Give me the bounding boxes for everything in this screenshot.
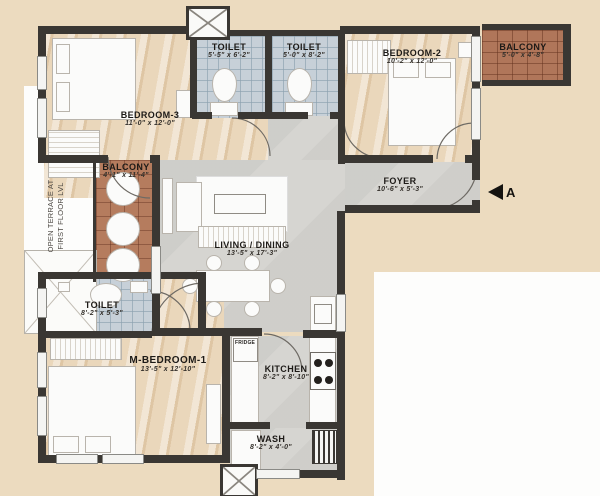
open-terrace-line1: OPEN TERRACE AT <box>46 168 56 264</box>
wall <box>337 211 345 296</box>
window <box>37 98 47 138</box>
room-name: TOILET <box>272 42 336 52</box>
wall <box>482 24 570 30</box>
room-label-toilet1: TOILET 5'-5" x 6'-2" <box>197 42 261 59</box>
window <box>37 56 47 90</box>
wall <box>340 26 480 34</box>
room-dims: 11'-0" x 12'-0" <box>90 120 210 127</box>
wall <box>38 26 46 162</box>
room-label-bedroom2: BEDROOM-2 10'-2" x 12'-0" <box>352 48 472 65</box>
room-label-balcony-right: BALCONY 5'-0" x 4'-8" <box>483 42 563 59</box>
section-marker-letter: A <box>506 185 515 200</box>
wall <box>330 112 345 119</box>
open-terrace-label: OPEN TERRACE AT FIRST FLOOR LVL <box>46 168 68 264</box>
wall <box>345 155 433 163</box>
room-name: WASH <box>226 434 316 444</box>
room-dims: 10'-6" x 5'-3" <box>350 186 450 193</box>
room-label-kitchen: KITCHEN 8'-2" x 8'-10" <box>236 364 336 381</box>
wall <box>482 80 570 86</box>
wall <box>198 272 206 336</box>
wall <box>38 272 206 279</box>
room-name: LIVING / DINING <box>192 240 312 250</box>
room-label-toilet2: TOILET 5'-0" x 8'-2" <box>272 42 336 59</box>
wall <box>345 205 480 213</box>
floor-plan: BEDROOM-3 11'-0" x 12'-0" TOILET 5'-5" x… <box>0 0 600 496</box>
room-name: BEDROOM-3 <box>90 110 210 120</box>
room-label-foyer: FOYER 10'-6" x 5'-3" <box>350 176 450 193</box>
window <box>37 396 47 436</box>
open-terrace-line2: FIRST FLOOR LVL <box>56 168 66 264</box>
room-label-living-dining: LIVING / DINING 13'-5" x 17'-3" <box>192 240 312 257</box>
room-name: TOILET <box>62 300 142 310</box>
room-label-bedroom3: BEDROOM-3 11'-0" x 12'-0" <box>90 110 210 127</box>
window <box>37 352 47 388</box>
room-name: BEDROOM-2 <box>352 48 472 58</box>
room-name: FOYER <box>350 176 450 186</box>
window <box>471 88 481 140</box>
room-dims: 8'-2" x 5'-3" <box>62 310 142 317</box>
duct-shaft-bottom <box>220 464 258 496</box>
room-name: M-BEDROOM-1 <box>108 355 228 366</box>
wall <box>472 162 480 180</box>
room-name: KITCHEN <box>236 364 336 374</box>
room-dims: 4'-1" x 11'-4" <box>87 172 165 179</box>
room-dims: 8'-2" x 8'-10" <box>236 374 336 381</box>
section-arrow-icon <box>488 184 503 200</box>
shaft-cross-icon <box>189 9 227 37</box>
wall <box>563 24 571 86</box>
room-name: TOILET <box>197 42 261 52</box>
room-dims: 10'-2" x 12'-0" <box>352 58 472 65</box>
fridge-label: FRIDGE <box>235 340 255 346</box>
window <box>256 469 300 479</box>
shaft-cross-icon <box>223 467 255 495</box>
wall <box>337 330 345 480</box>
wall <box>38 331 152 338</box>
balcony-door <box>471 36 481 82</box>
wall <box>152 328 262 336</box>
room-label-toilet3: TOILET 8'-2" x 5'-3" <box>62 300 142 317</box>
room-label-wash: WASH 8'-2" x 4'-0" <box>226 434 316 451</box>
wall <box>338 30 345 164</box>
wall <box>265 32 272 118</box>
room-name: BALCONY <box>87 162 165 172</box>
window <box>37 288 47 318</box>
wall <box>306 422 345 429</box>
room-dims: 5'-0" x 4'-8" <box>483 52 563 59</box>
window <box>151 246 161 294</box>
section-marker-a: A <box>488 184 515 200</box>
room-label-balcony-left: BALCONY 4'-1" x 11'-4" <box>87 162 165 179</box>
room-dims: 5'-0" x 8'-2" <box>272 52 336 59</box>
room-label-master-bedroom: M-BEDROOM-1 13'-5" x 12'-10" <box>108 355 228 373</box>
wall <box>38 26 196 34</box>
room-dims: 8'-2" x 4'-0" <box>226 444 316 451</box>
window <box>336 294 346 332</box>
wall <box>190 30 197 118</box>
wall <box>238 112 308 119</box>
room-dims: 13'-5" x 17'-3" <box>192 250 312 257</box>
wall <box>222 422 270 429</box>
window <box>102 454 144 464</box>
room-dims: 13'-5" x 12'-10" <box>108 366 228 373</box>
window <box>56 454 98 464</box>
room-dims: 5'-5" x 6'-2" <box>197 52 261 59</box>
duct-shaft-top <box>186 6 230 40</box>
room-name: BALCONY <box>483 42 563 52</box>
